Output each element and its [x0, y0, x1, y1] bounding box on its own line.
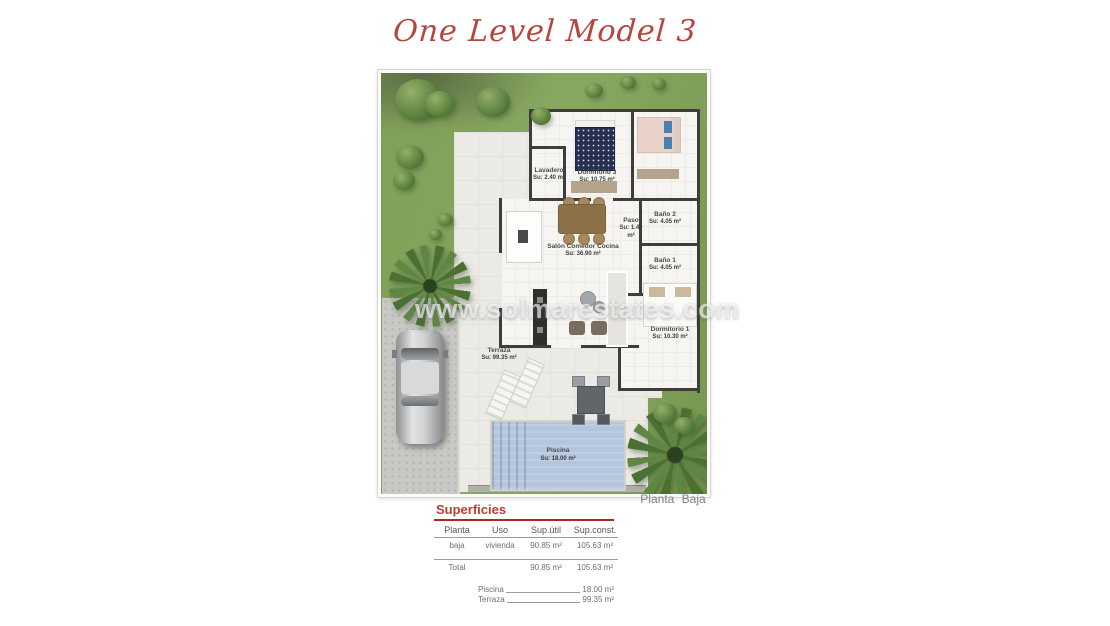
wall — [529, 109, 700, 112]
bush — [652, 78, 666, 90]
bush — [674, 417, 694, 434]
bush — [393, 171, 415, 190]
room-label-bano2: Baño 2 Su: 4.05 m² — [639, 211, 691, 227]
rug — [637, 169, 679, 179]
extra-label: Piscina — [478, 585, 504, 594]
wall — [642, 243, 698, 246]
table-total-row: Total 90.85 m² 105.63 m² — [434, 561, 618, 573]
car-mirror — [443, 350, 448, 358]
outdoor-chair — [597, 414, 610, 425]
kitchen-hob — [518, 230, 528, 243]
surfaces-extras: Piscina 18.00 m² Terraza 99.35 m² — [478, 584, 614, 604]
car-rear-window — [401, 396, 439, 406]
room-label-bano1: Baño 1 Su: 4.05 m² — [639, 257, 691, 273]
bush — [653, 403, 677, 423]
extra-row-terraza: Terraza 99.35 m² — [478, 594, 614, 604]
room-label-terraza: Terraza Su: 99.35 m² — [471, 347, 527, 363]
bush — [437, 213, 453, 226]
cell-total-label: Total — [434, 563, 480, 572]
swimming-pool: Piscina Su: 18.00 m² — [490, 420, 626, 491]
col-header-sup-util: Sup.útil — [520, 525, 572, 535]
extra-value: 18.00 m² — [582, 585, 614, 594]
bush — [585, 83, 603, 98]
pillow — [664, 137, 672, 149]
page-title: One Level Model 3 — [339, 14, 751, 49]
pillow — [664, 121, 672, 133]
col-header-uso: Uso — [480, 525, 520, 535]
extra-row-piscina: Piscina 18.00 m² — [478, 584, 614, 594]
outdoor-table — [577, 386, 605, 414]
car — [393, 328, 447, 446]
bush — [531, 107, 551, 125]
wall — [697, 109, 700, 393]
table-divider — [434, 559, 618, 560]
table-row: baja vivienda 90.85 m² 105.63 m² — [434, 539, 618, 551]
plan-caption: Planta Baja — [628, 492, 718, 506]
bush — [429, 229, 442, 240]
dotted-leader — [506, 592, 581, 593]
car-windshield — [401, 348, 439, 360]
room-label-dormitorio3: Dormitorio 3 Su: 10.75 m² — [569, 169, 625, 185]
surfaces-heading: Superficies — [436, 502, 506, 517]
wall — [620, 388, 700, 391]
spacer — [434, 551, 618, 558]
cell-sup-const: 105.63 m² — [572, 541, 618, 550]
col-header-sup-const: Sup.const. — [572, 525, 618, 535]
red-divider — [434, 519, 614, 521]
extra-label: Terraza — [478, 595, 505, 604]
col-header-planta: Planta — [434, 525, 480, 535]
table-header-row: Planta Uso Sup.útil Sup.const. — [434, 524, 618, 536]
kitchen-island — [506, 211, 542, 263]
wall — [499, 198, 502, 253]
cell-planta: baja — [434, 541, 480, 550]
wall — [529, 109, 532, 201]
cell-total-sup-util: 90.85 m² — [520, 563, 572, 572]
cell-uso: vivienda — [480, 541, 520, 550]
room-label-salon: Salón Comedor Cocina Su: 36.90 m² — [545, 243, 621, 259]
surfaces-table: Planta Uso Sup.útil Sup.const. baja vivi… — [434, 524, 618, 573]
dotted-leader — [507, 602, 581, 603]
room-label-dormitorio1: Dormitorio 1 Su: 10.30 m² — [645, 326, 695, 342]
wall — [613, 198, 700, 201]
appliance — [537, 327, 543, 333]
extra-value: 99.35 m² — [582, 595, 614, 604]
wall — [631, 109, 634, 201]
double-bed-dark — [575, 127, 615, 171]
pool-steps — [492, 422, 532, 489]
room-label-piscina: Piscina Su: 18.00 m² — [540, 447, 575, 463]
bush — [476, 87, 510, 117]
brochure-page: One Level Model 3 Piscina Su: 18.00 m² — [0, 0, 1110, 626]
bush — [396, 145, 424, 169]
room-label-lavadero: Lavadero Su: 2.40 m² — [528, 167, 570, 183]
wall — [529, 146, 566, 149]
double-bed-pink — [637, 117, 681, 153]
car-roof — [401, 362, 439, 394]
headboard — [674, 118, 680, 152]
car-mirror — [392, 350, 397, 358]
cell-sup-util: 90.85 m² — [520, 541, 572, 550]
dining-table — [558, 204, 606, 234]
watermark: www.solmarestates.com — [415, 294, 735, 325]
table-divider — [434, 537, 618, 538]
bush — [425, 91, 455, 117]
cell-total-sup-const: 105.63 m² — [572, 563, 618, 572]
floor-plan: Piscina Su: 18.00 m² — [378, 70, 710, 497]
outdoor-chair — [572, 414, 585, 425]
bush — [620, 76, 636, 89]
